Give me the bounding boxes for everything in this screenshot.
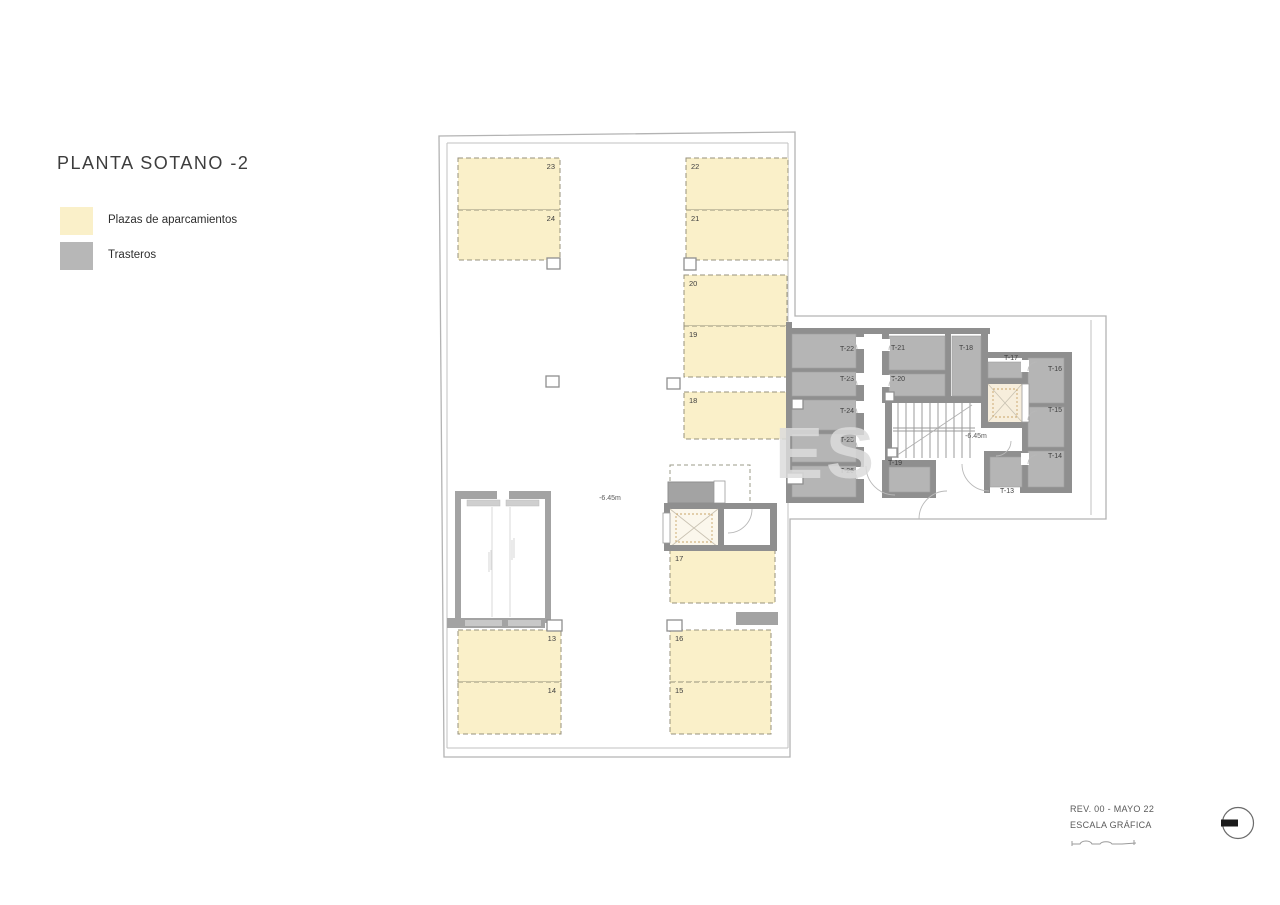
- parking-space-number: 21: [691, 214, 699, 223]
- parking-space: 13: [458, 630, 561, 682]
- floor-level-label: -6.45m: [599, 495, 621, 502]
- parking-space-number: 24: [547, 214, 555, 223]
- ramp-wall-inset: [465, 620, 502, 626]
- storage-room-area: [988, 362, 1022, 378]
- door-arc: [728, 509, 752, 533]
- scale-label: ESCALA GRÁFICA: [1070, 820, 1152, 830]
- parking-space-number: 18: [689, 396, 697, 405]
- parking-space-area: [458, 682, 561, 734]
- elevator-wall: [664, 503, 726, 509]
- ramp-wall: [455, 494, 461, 627]
- scale-bar: [1072, 840, 1136, 846]
- parking-space: 19: [684, 326, 787, 377]
- parking-space: 16: [670, 630, 771, 682]
- wall: [770, 509, 777, 549]
- parking-space-area: [670, 550, 775, 603]
- parking-space-number: 19: [689, 330, 697, 339]
- storage-room-label: T-17: [1004, 355, 1018, 362]
- storage-room: T-22: [792, 334, 856, 368]
- storage-room-label: T-22: [840, 346, 854, 353]
- wall: [664, 545, 777, 551]
- duct: [668, 482, 714, 503]
- storage-room: T-16: [1028, 358, 1064, 403]
- parking-space-area: [458, 158, 560, 210]
- storage-room-label: T-15: [1048, 407, 1062, 414]
- parking-space: 21: [686, 210, 788, 260]
- parking-space-area: [458, 210, 560, 260]
- storage-room-label: T-19: [888, 460, 902, 467]
- parking-space: 17: [670, 550, 775, 603]
- floor-level-label: -6.45m: [965, 433, 987, 440]
- ramp-wall: [545, 494, 551, 623]
- orientation-bar-icon: [1221, 820, 1238, 827]
- parking-space-number: 17: [675, 554, 683, 563]
- storage-room-area: [889, 467, 930, 492]
- storage-room: T-13: [990, 457, 1022, 495]
- storage-room: T-17: [988, 355, 1022, 378]
- parking-layer: 232422212019181713141615: [458, 158, 788, 734]
- storage-room-label: T-18: [959, 345, 973, 352]
- ramp-grating: [506, 500, 539, 506]
- parking-space-number: 16: [675, 634, 683, 643]
- staircase: [893, 403, 975, 458]
- revision-note: REV. 00 - MAYO 22: [1070, 804, 1154, 814]
- storage-room: T-15: [1028, 407, 1064, 447]
- parking-space-area: [684, 392, 788, 439]
- parking-space-area: [686, 158, 788, 210]
- storage-room-label: T-13: [1000, 488, 1014, 495]
- parking-space: 18: [684, 392, 788, 439]
- parking-space-number: 23: [547, 162, 555, 171]
- parking-space: 20: [684, 275, 787, 326]
- watermark: ES: [775, 414, 877, 494]
- storage-room-label: T-16: [1048, 366, 1062, 373]
- parking-space: 22: [686, 158, 788, 210]
- storage-room-area: [990, 457, 1022, 487]
- ramp-grating: [467, 500, 500, 506]
- parking-space-area: [684, 326, 787, 377]
- storage-room-label: T-14: [1048, 453, 1062, 460]
- elevator-door: [663, 513, 670, 543]
- parking-space: 24: [458, 210, 560, 260]
- storage-room-area: [1028, 358, 1064, 403]
- parking-space-area: [684, 275, 787, 326]
- parking-space-number: 13: [548, 634, 556, 643]
- ramp-lane-lines: [492, 507, 510, 617]
- parking-space-number: 22: [691, 162, 699, 171]
- storage-room-label: T-20: [891, 376, 905, 383]
- floor-plan-drawing: 232422212019181713141615: [0, 0, 1280, 905]
- storage-room: T-23: [792, 372, 856, 396]
- ramp-wall-inset: [508, 620, 541, 626]
- floor-plan-page: PLANTA SOTANO -2 Plazas de aparcamientos…: [0, 0, 1280, 905]
- parking-space-area: [670, 682, 771, 734]
- parking-space: 23: [458, 158, 560, 210]
- storage-room: T-14: [1028, 451, 1064, 487]
- elevator-door: [1022, 384, 1029, 422]
- wall: [736, 612, 778, 625]
- wall: [724, 503, 777, 509]
- storage-room-label: T-21: [891, 345, 905, 352]
- ramp-wall: [509, 491, 551, 499]
- parking-space-area: [670, 630, 771, 682]
- parking-space: 15: [670, 682, 771, 734]
- parking-space-area: [686, 210, 788, 260]
- ramp-wall: [455, 491, 497, 499]
- wing-elevator: [988, 384, 1029, 422]
- parking-space-number: 15: [675, 686, 683, 695]
- car-ramp: [447, 491, 551, 628]
- storage-room: T-18: [952, 336, 981, 396]
- parking-space-number: 14: [548, 686, 556, 695]
- parking-space-number: 20: [689, 279, 697, 288]
- parking-space: 14: [458, 682, 561, 734]
- duct-door: [714, 481, 725, 503]
- parking-space-area: [458, 630, 561, 682]
- orientation-symbol: [1221, 808, 1254, 839]
- elevator-wall: [718, 509, 724, 547]
